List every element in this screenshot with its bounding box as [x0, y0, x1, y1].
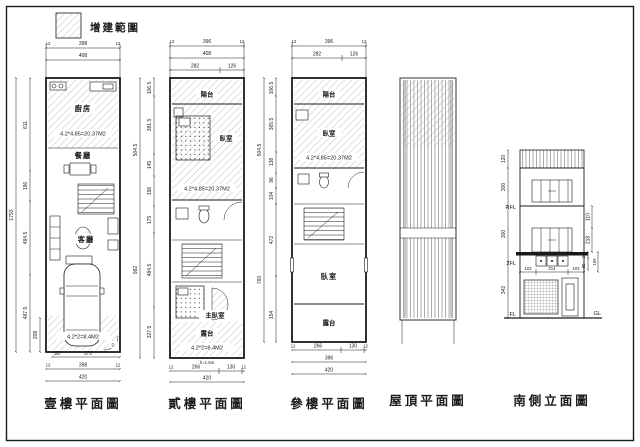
dim: 381.5 [147, 119, 153, 132]
dim: 408 [79, 53, 88, 59]
dim: 175 [147, 216, 153, 225]
entry-door [562, 278, 578, 316]
dim: 26 [581, 253, 586, 258]
drawing-sheet: 增建範圍 12 398 12 408 1793 611 196 484.5 48… [0, 0, 640, 447]
window-3f [532, 180, 572, 202]
roof-title: 屋頂平面圖 [389, 393, 467, 408]
dim: SD [54, 351, 61, 357]
dim: 80 [581, 263, 586, 268]
dim: 282 [191, 64, 200, 70]
dim: 472 [269, 236, 275, 245]
dim: 266 [192, 365, 201, 371]
dim: 504.5 [133, 144, 139, 157]
dim: 12 [292, 39, 297, 44]
dim: 103 [572, 266, 580, 271]
room-label-living: 客廳 [77, 235, 94, 244]
room-label-balcony: 陽台 [323, 90, 336, 99]
dim: 12 [291, 344, 296, 349]
room-label-terrace: 露台 [323, 318, 336, 327]
balcony-slab [516, 252, 588, 256]
parapet-railing [520, 150, 584, 168]
dim: 487.5 [23, 307, 29, 320]
dim: 12 [46, 41, 51, 46]
dim: 396 [325, 39, 334, 45]
level-gl: GL [594, 311, 601, 317]
dim: 106.5 [147, 82, 153, 95]
dim: 218 [586, 236, 592, 245]
dim: 12 [116, 363, 121, 368]
dim: 504.5 [257, 144, 263, 157]
dim: 126 [350, 52, 359, 58]
room-label-dining: 餐廳 [74, 151, 91, 160]
dim: 420 [203, 376, 212, 382]
room-label-bedroom: 臥室 [323, 129, 336, 138]
garage-door [524, 280, 558, 314]
dim: 103 [524, 266, 532, 271]
dim: 408 [203, 51, 212, 57]
dim: 300 [501, 183, 507, 192]
dim: 342 [501, 286, 507, 295]
dim: 282 [313, 52, 322, 58]
dim: 126 [228, 64, 237, 70]
room-label-bedroom: 臥室 [220, 134, 233, 143]
floor1-stairs [78, 184, 114, 214]
dim: 12 [363, 344, 368, 349]
dim: 398 [79, 363, 88, 369]
room-label-kitchen: 廚房 [75, 104, 91, 113]
room-label-bedroom2: 臥室 [321, 272, 337, 281]
dim: 208 [33, 331, 39, 340]
dim: 982 [133, 266, 139, 275]
dim: 365.5 [269, 118, 275, 131]
dim: 1793 [9, 209, 15, 220]
dim: 12 [241, 365, 246, 370]
floor3-stairs [304, 208, 344, 240]
window-2f [532, 228, 572, 252]
desk [296, 110, 308, 120]
dim: 396 [203, 39, 212, 45]
floor2-stairs [182, 244, 222, 278]
legend-hatch-swatch [56, 13, 81, 38]
dim: 398 [79, 41, 88, 47]
dim: 145 [147, 161, 153, 170]
dim: 130 [349, 344, 358, 350]
dim: 611 [23, 121, 29, 129]
level-fl: FL [509, 312, 516, 318]
planter-boxes [536, 256, 568, 266]
floor3-title: 參樓平面圖 [290, 396, 368, 411]
dim: 130 [227, 365, 236, 371]
dim: 396 [325, 356, 334, 362]
roof-addition-hatch [402, 80, 454, 146]
dim: 420 [325, 368, 334, 374]
bed [176, 116, 210, 160]
tv-cabinet [66, 256, 92, 264]
dim: 138 [269, 158, 275, 167]
dim: 327.5 [147, 326, 153, 339]
area-label: 4.2*4.85=20.37M2 [184, 187, 230, 193]
dining-table [70, 163, 90, 175]
dim: 110 [586, 213, 592, 221]
dim: 154 [269, 311, 275, 320]
door-label: D [111, 343, 114, 348]
dim: 12 [169, 365, 174, 370]
dim: 159 [592, 258, 597, 266]
dim: 106.5 [269, 82, 275, 95]
area-label: 4.2*4.85=20.37M2 [306, 156, 352, 162]
room-label-terrace: 露台 [201, 329, 214, 338]
legend-label: 增建範圍 [90, 21, 140, 34]
area-label: 4.2*2=8.4M2 [67, 335, 99, 341]
dim: 120 [501, 155, 507, 164]
dim: 300 [501, 230, 507, 239]
dim: 760 [257, 276, 263, 285]
floor1-title: 壹樓平面圖 [44, 396, 122, 411]
dim: 372 [84, 351, 93, 357]
floor2-title: 貳樓平面圖 [168, 396, 246, 411]
dim: 12 [46, 363, 51, 368]
architectural-drawing: 增建範圍 12 398 12 408 1793 611 196 484.5 48… [0, 0, 640, 447]
side-table [108, 240, 118, 250]
room-label-master: 主臥室 [205, 311, 225, 320]
dim: 96 [269, 177, 275, 183]
dim: 484.5 [147, 264, 153, 277]
dim: 196 [23, 182, 29, 191]
note: h=1.5m [200, 360, 215, 365]
dim: 104 [269, 192, 275, 201]
window-mark [291, 258, 294, 272]
dim: 214 [548, 266, 556, 271]
area-label: 4.2*4.85=20.37M2 [60, 132, 106, 138]
elevation-title: 南側立面圖 [513, 393, 591, 408]
dim: 420 [79, 375, 88, 381]
dim: 484.5 [23, 232, 29, 245]
level-rfl: RFL [505, 205, 516, 211]
armchair [108, 218, 118, 234]
dim: 266 [314, 344, 323, 350]
dim: 12 [170, 39, 175, 44]
area-label: 4.2*2=8.4M2 [191, 346, 223, 352]
window-mark [365, 258, 368, 272]
dim: 196 [147, 187, 153, 196]
room-label-balcony: 陽台 [201, 90, 214, 99]
